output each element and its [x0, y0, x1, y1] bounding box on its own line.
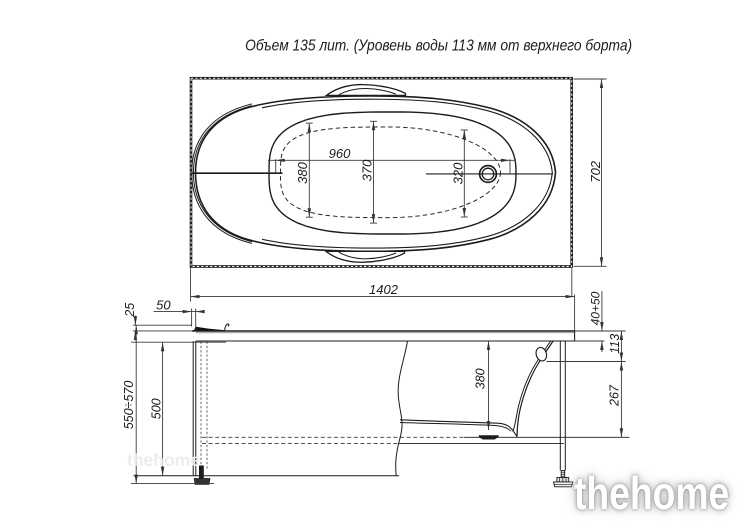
svg-text:500: 500	[149, 398, 163, 419]
svg-text:550÷570: 550÷570	[122, 381, 136, 430]
svg-text:267: 267	[607, 384, 621, 407]
svg-text:113: 113	[608, 334, 622, 354]
svg-text:380: 380	[473, 368, 487, 389]
svg-text:380: 380	[295, 161, 310, 183]
svg-text:702: 702	[588, 160, 603, 182]
svg-text:50: 50	[156, 298, 171, 313]
svg-text:320: 320	[451, 162, 466, 184]
svg-text:960: 960	[329, 146, 351, 161]
svg-text:Объем 135 лит. (Уровень воды 1: Объем 135 лит. (Уровень воды 113 мм от в…	[245, 38, 632, 55]
svg-text:1402: 1402	[369, 282, 399, 297]
svg-text:370: 370	[360, 159, 375, 181]
svg-text:40+50: 40+50	[588, 291, 602, 325]
svg-text:25: 25	[123, 303, 137, 318]
